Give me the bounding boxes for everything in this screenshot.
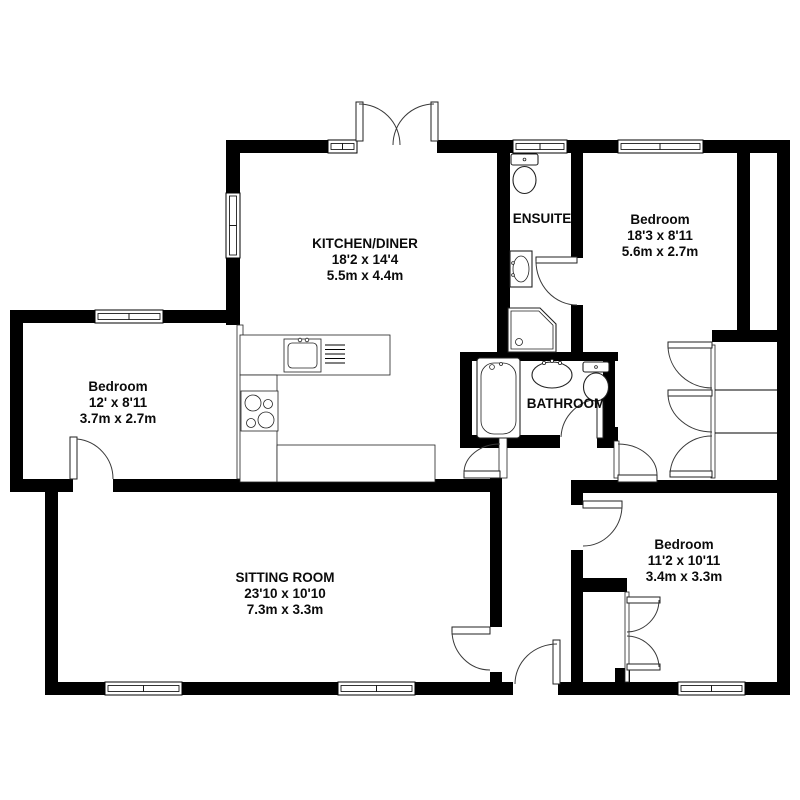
door-bedroom2: [70, 437, 113, 479]
bathroom-bathtub: [477, 358, 520, 438]
floor-plan: KITCHEN/DINER 18'2 x 14'4 5.5m x 4.4m EN…: [0, 0, 800, 800]
door-ensuite: [536, 257, 577, 305]
room-name: Bedroom: [630, 212, 689, 227]
bathroom-sink: [532, 359, 572, 388]
window-sitting-left: [105, 682, 182, 695]
window-bedroom3-bottom: [678, 682, 745, 695]
room-dims-metric: 5.6m x 2.7m: [622, 244, 699, 259]
doors: [70, 102, 712, 684]
room-name: ENSUITE: [513, 211, 572, 226]
window-kitchen-left: [226, 193, 240, 258]
room-label-bedroom3: Bedroom 11'2 x 10'11 3.4m x 3.3m: [646, 537, 723, 584]
room-dims-imperial: 18'3 x 8'11: [627, 228, 693, 243]
ensuite-shower: [508, 308, 556, 352]
floor-plan-page: KITCHEN/DINER 18'2 x 14'4 5.5m x 4.4m EN…: [0, 0, 800, 800]
room-label-ensuite: ENSUITE: [513, 211, 572, 226]
room-dims-imperial: 12' x 8'11: [89, 395, 148, 410]
door-sitting: [452, 627, 490, 670]
fixtures: [240, 154, 609, 482]
room-label-bedroom1: Bedroom 18'3 x 8'11 5.6m x 2.7m: [622, 212, 699, 259]
dressing-door-frame: [614, 441, 619, 478]
window-bedroom2-top: [95, 310, 163, 323]
wardrobe-front: [711, 345, 715, 478]
room-dims-imperial: 18'2 x 14'4: [332, 252, 399, 267]
room-name: SITTING ROOM: [236, 570, 335, 585]
window-bedroom1-top: [618, 140, 703, 153]
room-dims-imperial: 11'2 x 10'11: [648, 553, 721, 568]
window-ensuite-top: [513, 140, 567, 153]
bedroom3-closet-doors: [627, 597, 660, 670]
room-label-sitting-room: SITTING ROOM 23'10 x 10'10 7.3m x 3.3m: [236, 570, 335, 617]
room-dims-metric: 3.7m x 2.7m: [80, 411, 157, 426]
window-kitchen-top: [328, 140, 357, 153]
kitchen-stove: [241, 391, 278, 431]
room-label-bathroom: BATHROOM: [527, 396, 606, 411]
ensuite-toilet: [511, 154, 538, 194]
door-dressing: [618, 444, 657, 482]
room-label-bedroom2: Bedroom 12' x 8'11 3.7m x 2.7m: [80, 379, 157, 426]
wardrobe-doors: [668, 342, 712, 477]
room-dims-metric: 7.3m x 3.3m: [247, 602, 324, 617]
door-kitchen: [464, 444, 500, 478]
door-entrance: [515, 640, 560, 684]
room-name: KITCHEN/DINER: [312, 236, 418, 251]
room-name: Bedroom: [654, 537, 713, 552]
ensuite-sink: [510, 251, 532, 287]
room-dims-metric: 3.4m x 3.3m: [646, 569, 723, 584]
room-labels: KITCHEN/DINER 18'2 x 14'4 5.5m x 4.4m EN…: [80, 211, 723, 617]
room-name: Bedroom: [88, 379, 147, 394]
room-dims-metric: 5.5m x 4.4m: [327, 268, 404, 283]
french-doors: [356, 102, 438, 145]
room-dims-imperial: 23'10 x 10'10: [244, 586, 326, 601]
room-name: BATHROOM: [527, 396, 606, 411]
window-sitting-right: [338, 682, 415, 695]
door-bedroom3: [583, 501, 622, 546]
room-label-kitchen-diner: KITCHEN/DINER 18'2 x 14'4 5.5m x 4.4m: [312, 236, 418, 283]
